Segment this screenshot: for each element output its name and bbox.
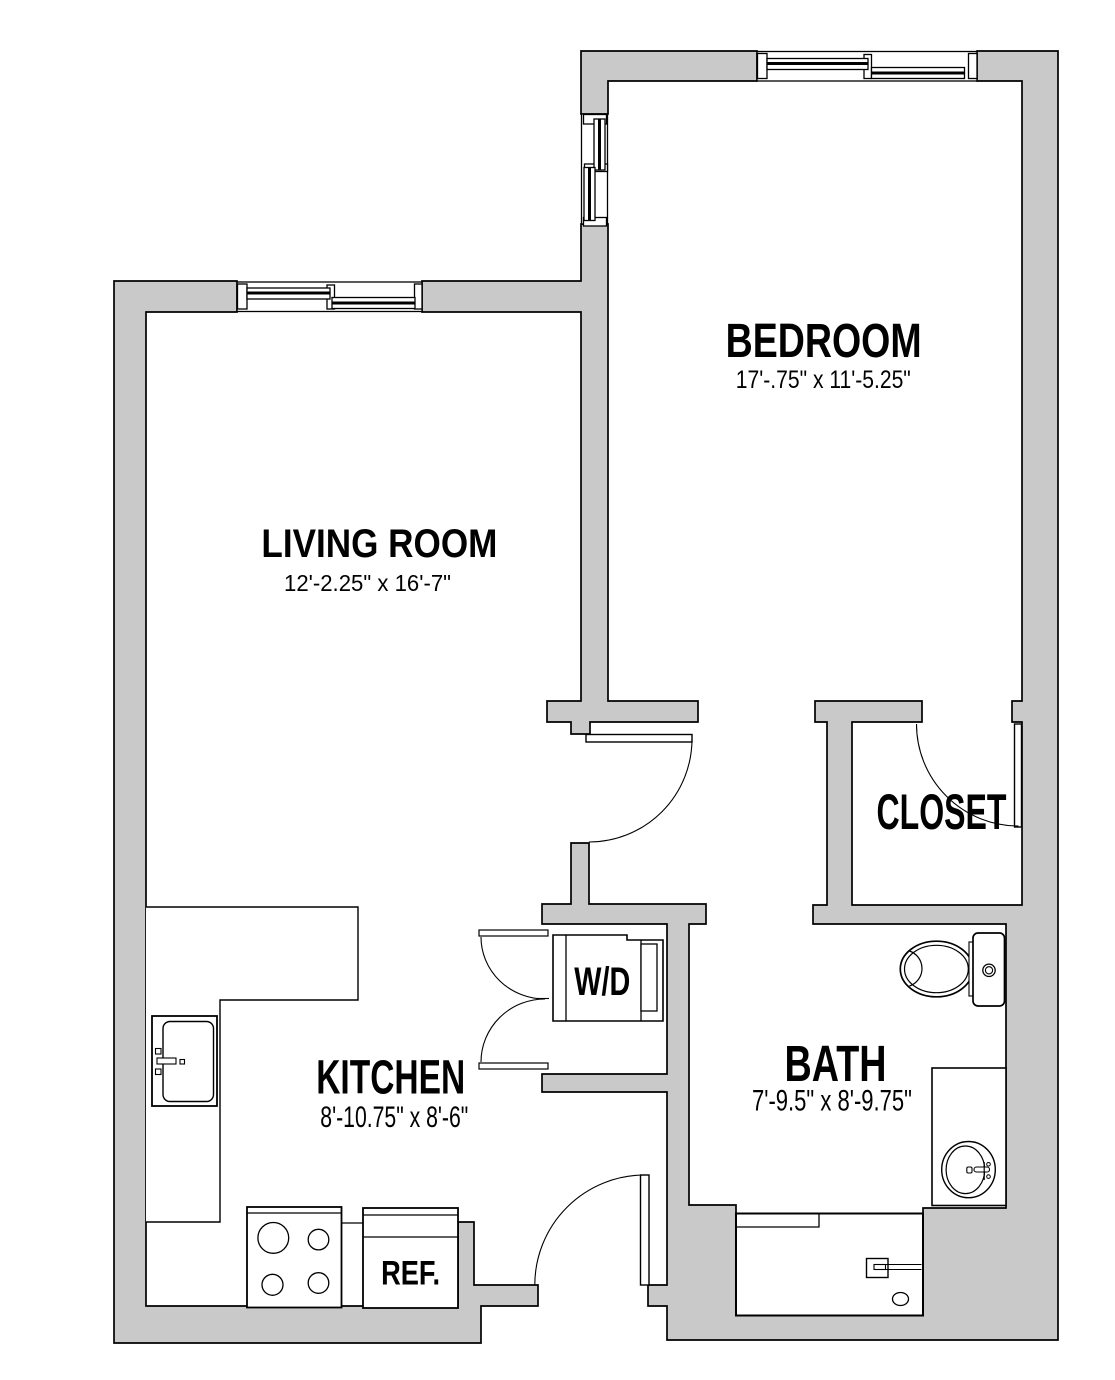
svg-text:12'-2.25" x 16'-7": 12'-2.25" x 16'-7"	[284, 570, 451, 596]
svg-text:KITCHEN: KITCHEN	[316, 1052, 465, 1105]
svg-text:REF.: REF.	[381, 1255, 440, 1293]
svg-text:BEDROOM: BEDROOM	[726, 315, 922, 368]
svg-text:17'-.75" x 11'-5.25": 17'-.75" x 11'-5.25"	[736, 366, 911, 394]
svg-text:BATH: BATH	[785, 1035, 887, 1092]
svg-text:LIVING ROOM: LIVING ROOM	[261, 522, 497, 566]
svg-text:8'-10.75" x 8'-6": 8'-10.75" x 8'-6"	[320, 1101, 468, 1134]
svg-text:CLOSET: CLOSET	[877, 784, 1007, 840]
svg-text:7'-9.5" x 8'-9.75": 7'-9.5" x 8'-9.75"	[752, 1085, 912, 1118]
svg-text:W/D: W/D	[574, 960, 630, 1004]
